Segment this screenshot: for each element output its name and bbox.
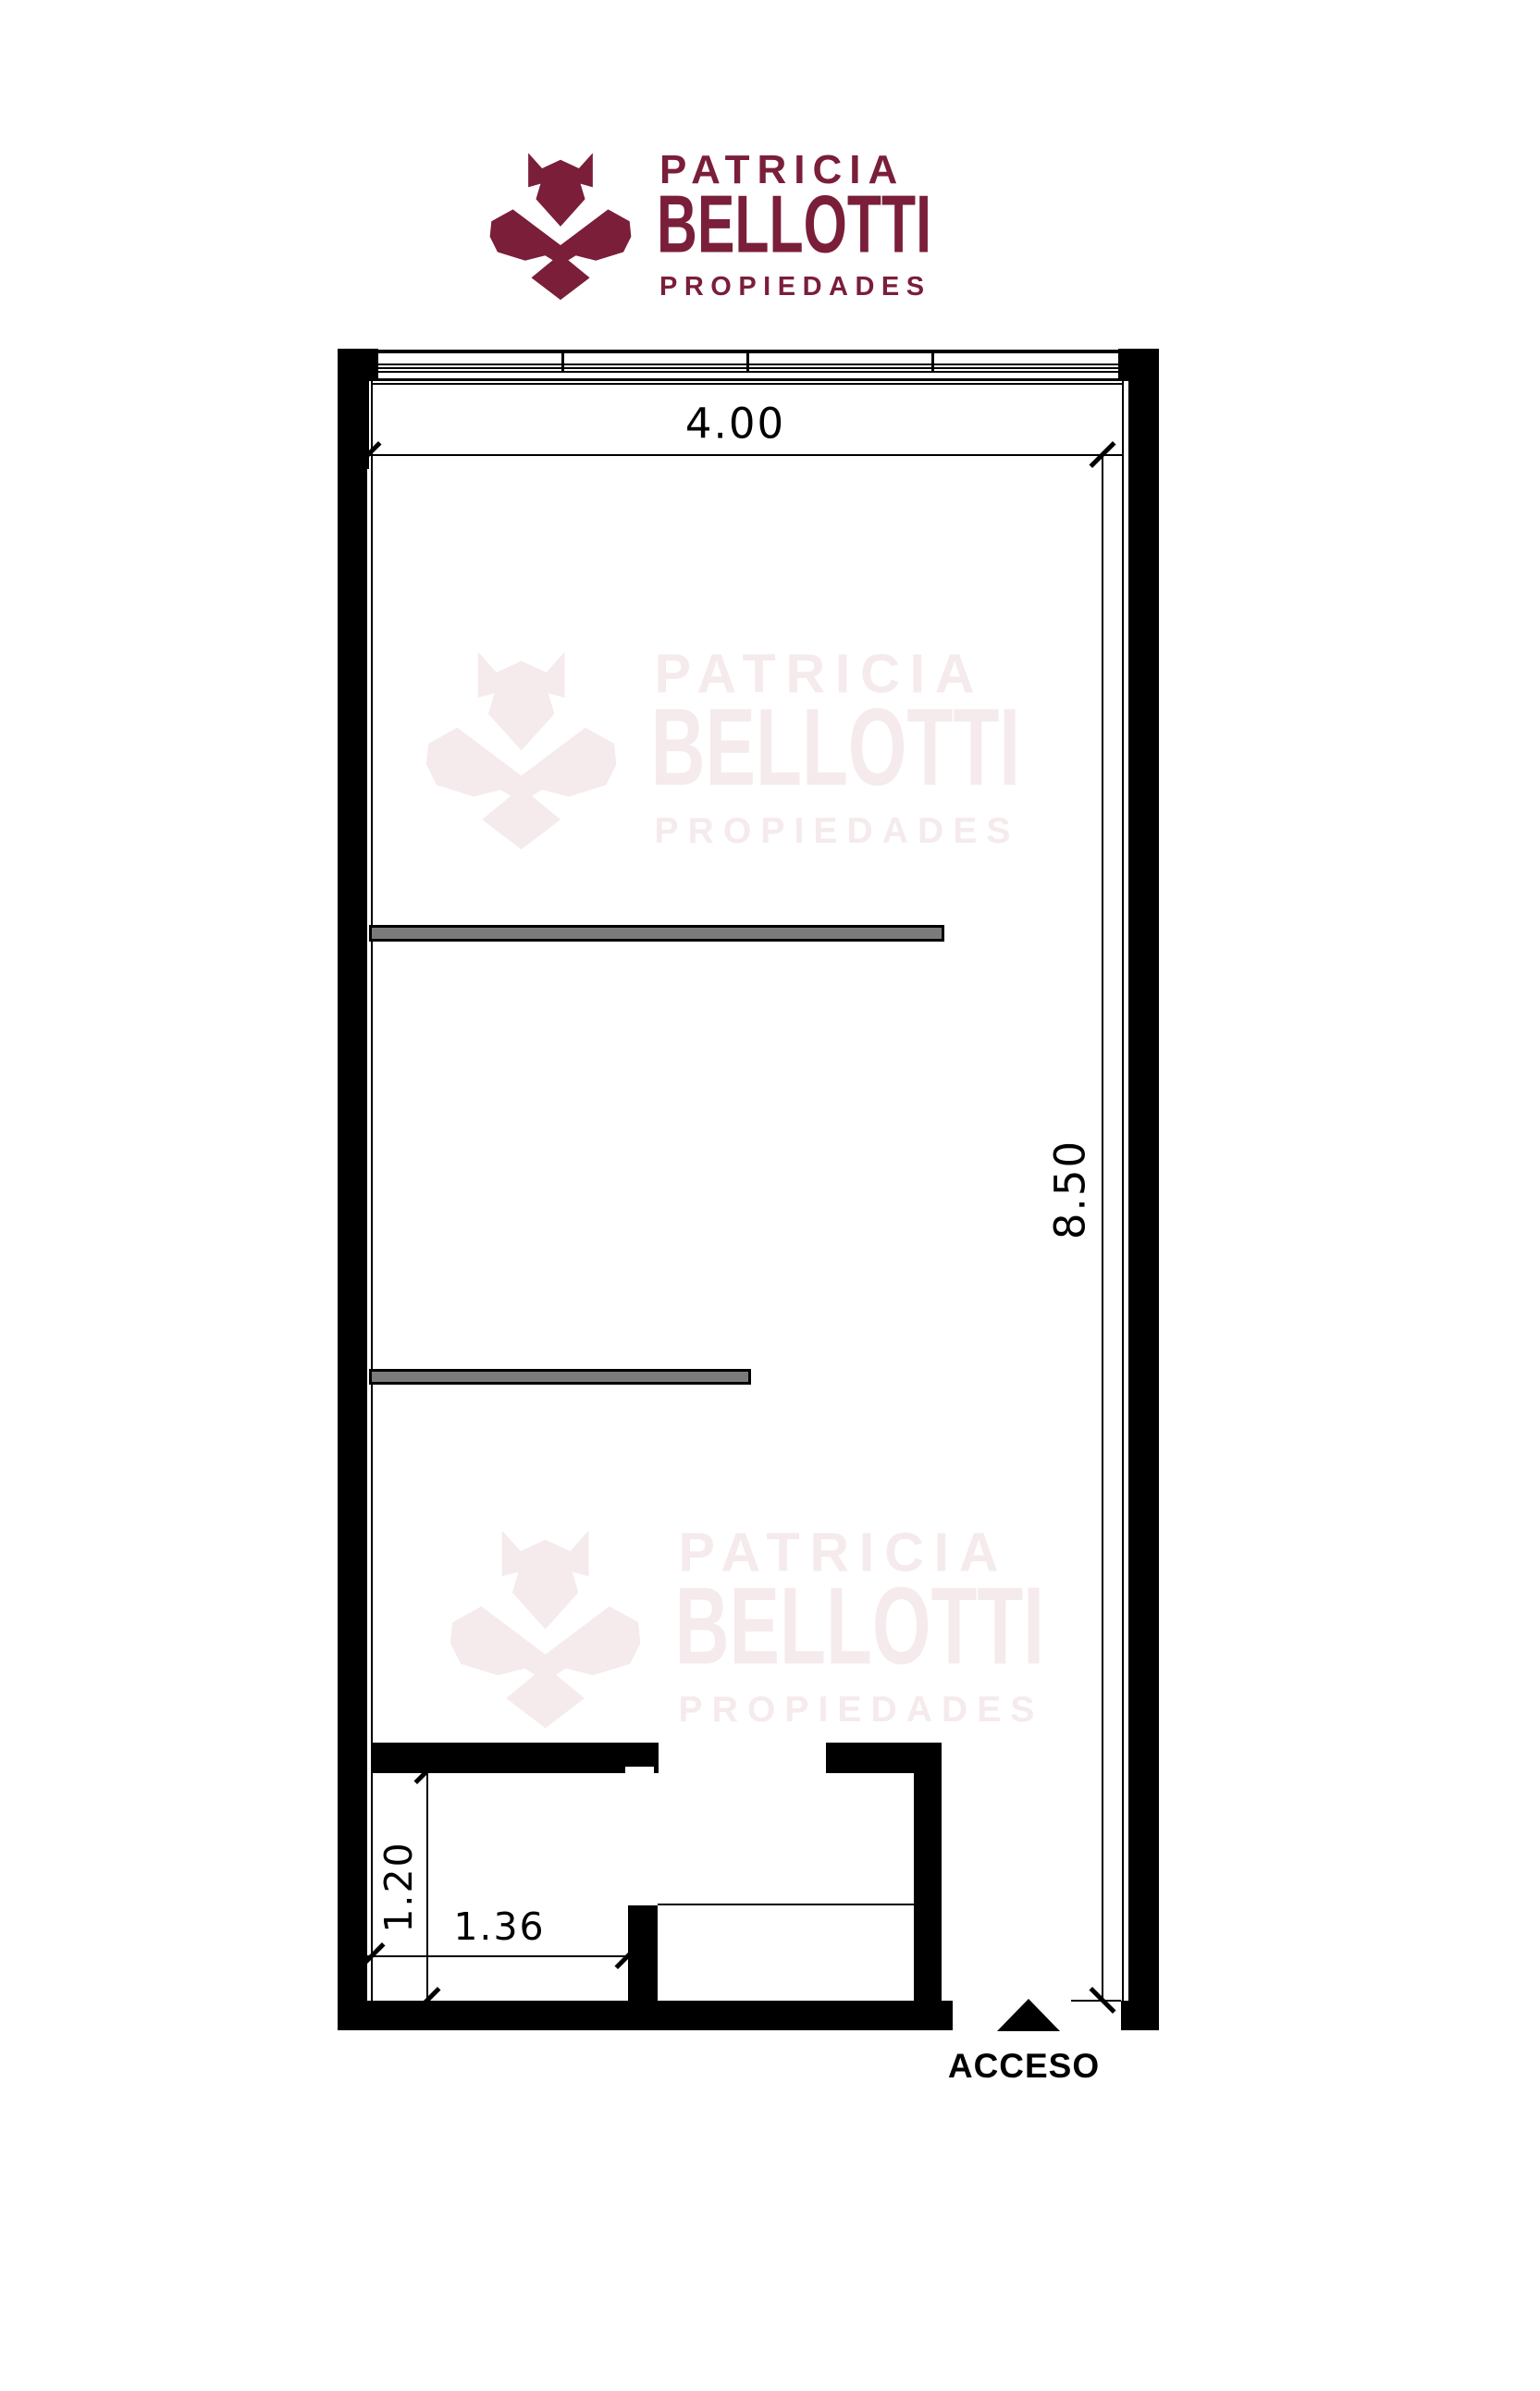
fox-logo-icon: [484, 146, 637, 326]
floorplan-page: PATRICIA BELLOTTI PROPIEDADES PATRICIA B…: [0, 0, 1540, 2391]
partition-shelf-upper: [369, 925, 944, 942]
wall-right-face-line: [1122, 381, 1124, 2001]
fox-logo-icon: [418, 643, 624, 884]
dim-endbar-height: [1071, 2000, 1121, 2002]
entry-wall-top: [826, 1743, 942, 1773]
wall-right: [1128, 349, 1159, 2030]
window-mullion-3: [931, 353, 934, 373]
brand-name-main: BELLOTTI: [651, 695, 1020, 804]
dim-label-height: 8.50: [1046, 1140, 1095, 1239]
brand-name-main: BELLOTTI: [657, 185, 931, 266]
window-mullion-1: [561, 353, 564, 373]
dim-line-bath-height: [426, 1771, 428, 2001]
access-label: ACCESO: [948, 2047, 1100, 2086]
window-mullion-2: [746, 353, 749, 373]
window-band: [378, 349, 1118, 386]
dim-label-width: 4.00: [685, 400, 785, 449]
bathroom-wall-top-notch: [625, 1767, 654, 1773]
dim-label-bath-height: 1.20: [376, 1841, 421, 1932]
brand-tagline: PROPIEDADES: [679, 1693, 1044, 1729]
brand-name-main: BELLOTTI: [675, 1573, 1044, 1682]
corner-block-left: [338, 349, 378, 381]
bathroom-wall-top: [372, 1743, 659, 1773]
dim-line-width: [368, 454, 1123, 456]
brand-logo-header: PATRICIA BELLOTTI PROPIEDADES: [484, 144, 942, 334]
brand-tagline: PROPIEDADES: [659, 274, 931, 301]
dim-line-bath-width: [361, 1955, 638, 1957]
fox-logo-icon: [442, 1522, 648, 1763]
watermark-logo-lower: PATRICIA BELLOTTI PROPIEDADES: [442, 1519, 1058, 1774]
dim-line-height: [1102, 454, 1103, 2001]
window-sill-line: [378, 378, 1118, 381]
wall-left: [338, 349, 367, 2030]
access-direction-triangle-icon: [997, 1999, 1060, 2031]
partition-shelf-lower: [369, 1369, 751, 1385]
entry-jamb-right: [1121, 2001, 1159, 2030]
corner-block-right: [1118, 349, 1159, 381]
wall-inner-face-line: [372, 383, 1122, 385]
dim-label-bath-width: 1.36: [453, 1904, 545, 1949]
wall-bottom: [338, 2001, 953, 2030]
brand-tagline: PROPIEDADES: [655, 814, 1020, 850]
counter-edge-line: [658, 1904, 914, 1905]
watermark-logo-upper: PATRICIA BELLOTTI PROPIEDADES: [418, 640, 1034, 895]
entry-wall-leg: [914, 1773, 942, 2001]
